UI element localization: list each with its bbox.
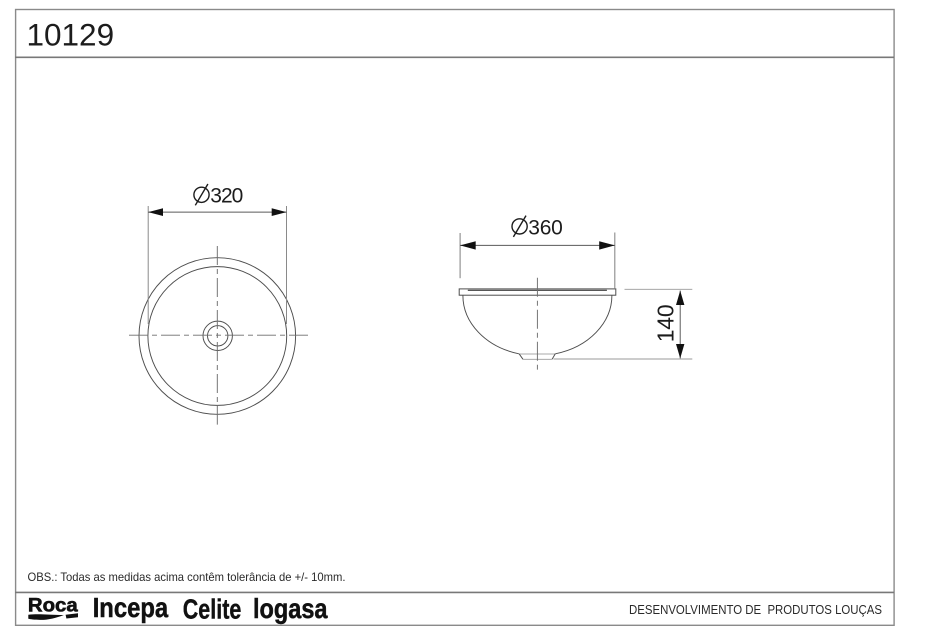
svg-text:DESENVOLVIMENTO DE PRODUTOS L: DESENVOLVIMENTO DE PRODUTOS LOUÇAS (629, 602, 882, 617)
svg-text:360: 360 (528, 216, 563, 239)
svg-text:OBS.: Todas as medidas acima c: OBS.: Todas as medidas acima contêm tole… (28, 570, 346, 584)
svg-text:Celite: Celite (183, 593, 242, 624)
svg-text:Incepa: Incepa (93, 592, 169, 623)
svg-text:10129: 10129 (27, 16, 115, 52)
svg-text:logasa: logasa (253, 593, 328, 624)
svg-text:Roca: Roca (28, 595, 78, 617)
svg-text:140: 140 (653, 304, 679, 342)
svg-text:320: 320 (210, 185, 243, 208)
